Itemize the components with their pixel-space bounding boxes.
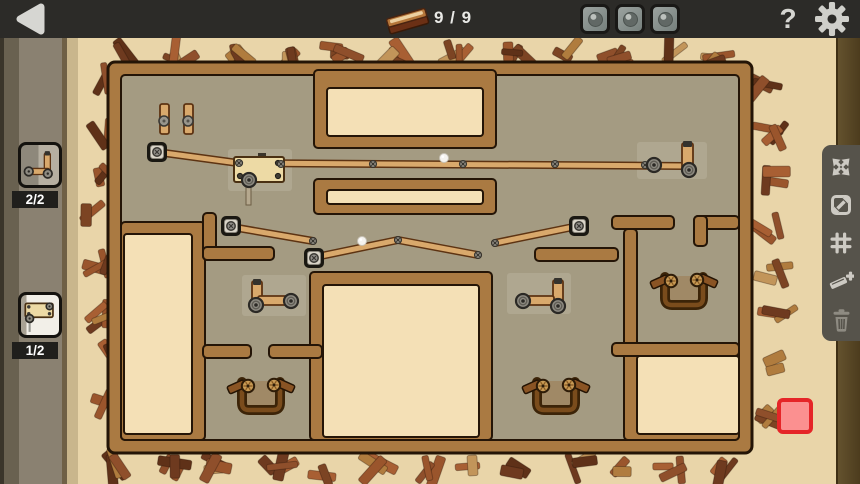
delete-button[interactable]	[826, 304, 856, 334]
plank-counter-value: 9 / 9	[434, 8, 472, 28]
stone-dot	[623, 12, 638, 27]
trash-icon	[828, 306, 854, 332]
game-scene	[0, 0, 860, 484]
top-bar: 9 / 9 ?	[0, 0, 860, 38]
gear-icon	[815, 2, 849, 36]
anchor-pin[interactable]	[147, 142, 167, 162]
side-toolbar	[822, 145, 860, 341]
table-edge-band	[67, 38, 78, 484]
stone-dot	[658, 12, 673, 27]
add-plank-button[interactable]	[826, 266, 856, 296]
grid-snap-button[interactable]	[826, 228, 856, 258]
add-plank-icon	[828, 268, 854, 294]
winch-thumbnail	[21, 295, 59, 336]
resize-icon	[828, 192, 854, 218]
inventory-item-winch[interactable]	[18, 292, 62, 338]
stone-button-3[interactable]	[650, 4, 680, 34]
game-screen: 9 / 9 ? 2/2	[0, 0, 860, 484]
marble-ball	[358, 237, 367, 246]
inventory-count-winch: 1/2	[12, 342, 58, 359]
expand-view-button[interactable]	[826, 152, 856, 182]
anchor-pin[interactable]	[221, 216, 241, 236]
grid-hash-icon	[828, 230, 854, 256]
settings-button[interactable]	[815, 2, 849, 36]
anchor-pin[interactable]	[304, 248, 324, 268]
plank-counter-icon	[384, 3, 430, 35]
table-edge-band	[4, 38, 19, 484]
board-walls	[108, 62, 752, 453]
inventory-item-pulley-bracket[interactable]	[18, 142, 62, 188]
table-edge-band	[19, 38, 62, 484]
anchor-pin[interactable]	[569, 216, 589, 236]
stop-button[interactable]	[777, 398, 813, 434]
back-arrow-icon	[12, 3, 50, 35]
inventory-count-pulley-bracket: 2/2	[12, 191, 58, 208]
stone-button-1[interactable]	[580, 4, 610, 34]
back-button[interactable]	[12, 3, 50, 35]
stone-button-2[interactable]	[615, 4, 645, 34]
pulley-bracket-thumbnail	[21, 145, 59, 185]
stone-dot	[588, 12, 603, 27]
expand-arrows-icon	[828, 154, 854, 180]
help-button[interactable]: ?	[775, 0, 801, 38]
resize-button[interactable]	[826, 190, 856, 220]
marble-ball	[440, 154, 449, 163]
